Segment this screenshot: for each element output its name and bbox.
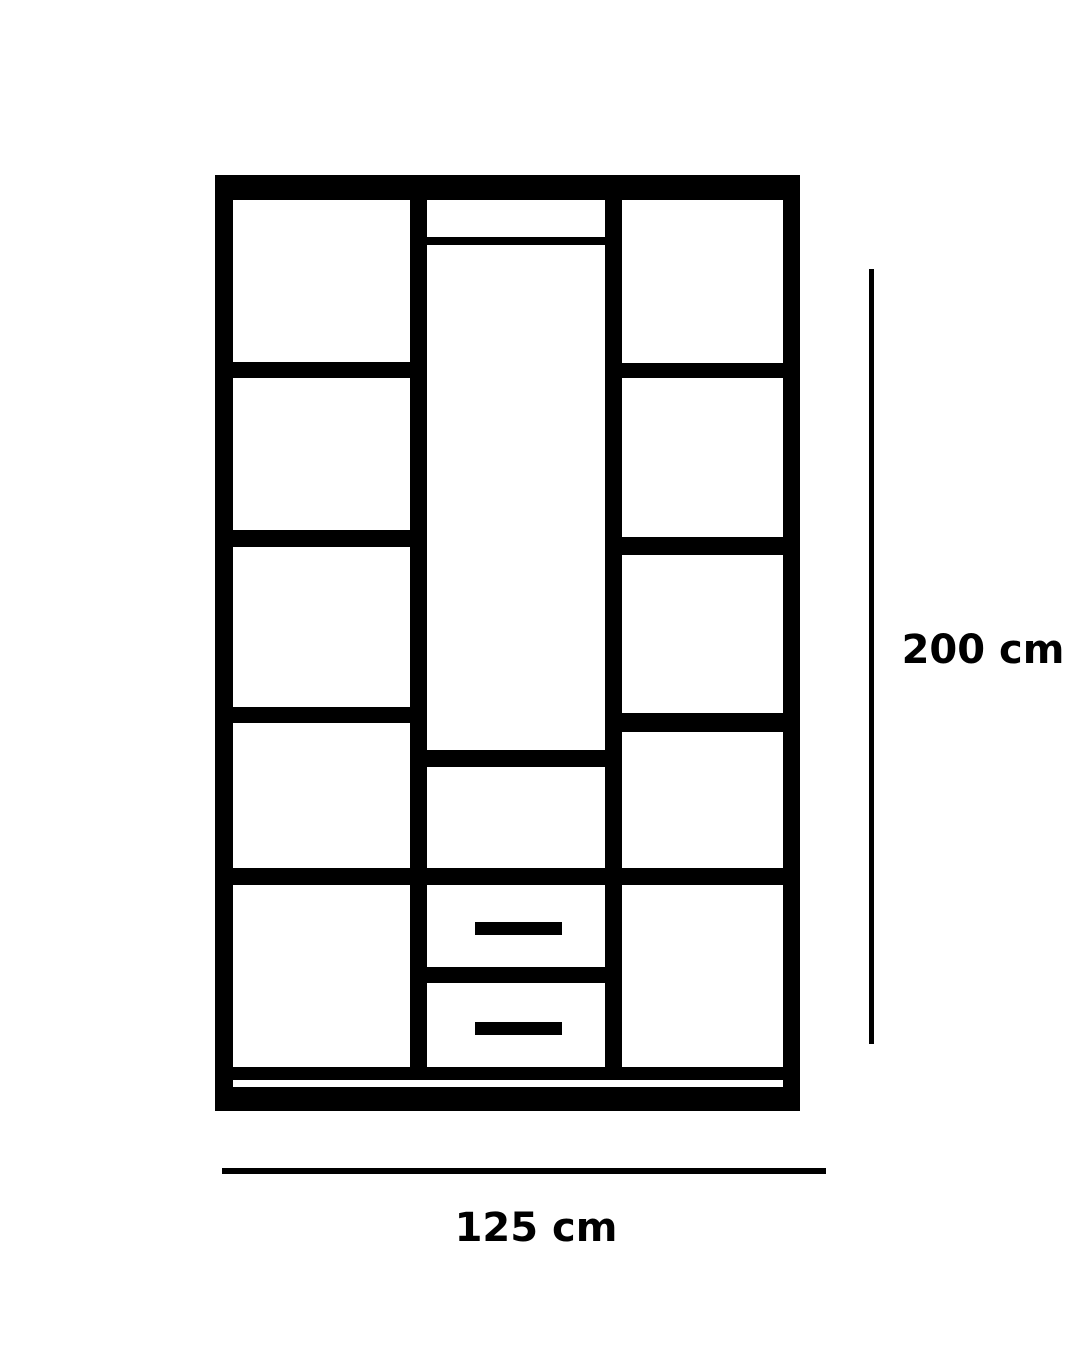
right-compartment-2 — [622, 378, 783, 537]
left-compartment-3 — [233, 547, 410, 707]
drawer-1-handle — [475, 922, 562, 935]
hanging-space — [427, 245, 605, 750]
plinth-gap-line — [233, 1080, 783, 1087]
width-dimension-label: 125 cm — [436, 1206, 636, 1250]
middle-shelf-compartment — [427, 767, 605, 868]
height-dimension-line — [869, 269, 874, 1044]
left-compartment-4 — [233, 723, 410, 868]
middle-top-compartment — [427, 200, 605, 237]
diagram-canvas: 200 cm 125 cm — [0, 0, 1090, 1350]
left-compartment-2 — [233, 378, 410, 530]
drawer-2 — [427, 983, 605, 1067]
width-dimension-line — [222, 1168, 826, 1174]
wardrobe-outline — [215, 175, 800, 1111]
right-compartment-4 — [622, 732, 783, 868]
right-compartment-5 — [622, 885, 783, 1067]
right-compartment-3 — [622, 555, 783, 713]
left-compartment-5 — [233, 885, 410, 1067]
right-compartment-1 — [622, 200, 783, 363]
height-dimension-label: 200 cm — [898, 628, 1068, 672]
left-compartment-1 — [233, 200, 410, 362]
drawer-1 — [427, 885, 605, 967]
drawer-2-handle — [475, 1022, 562, 1035]
